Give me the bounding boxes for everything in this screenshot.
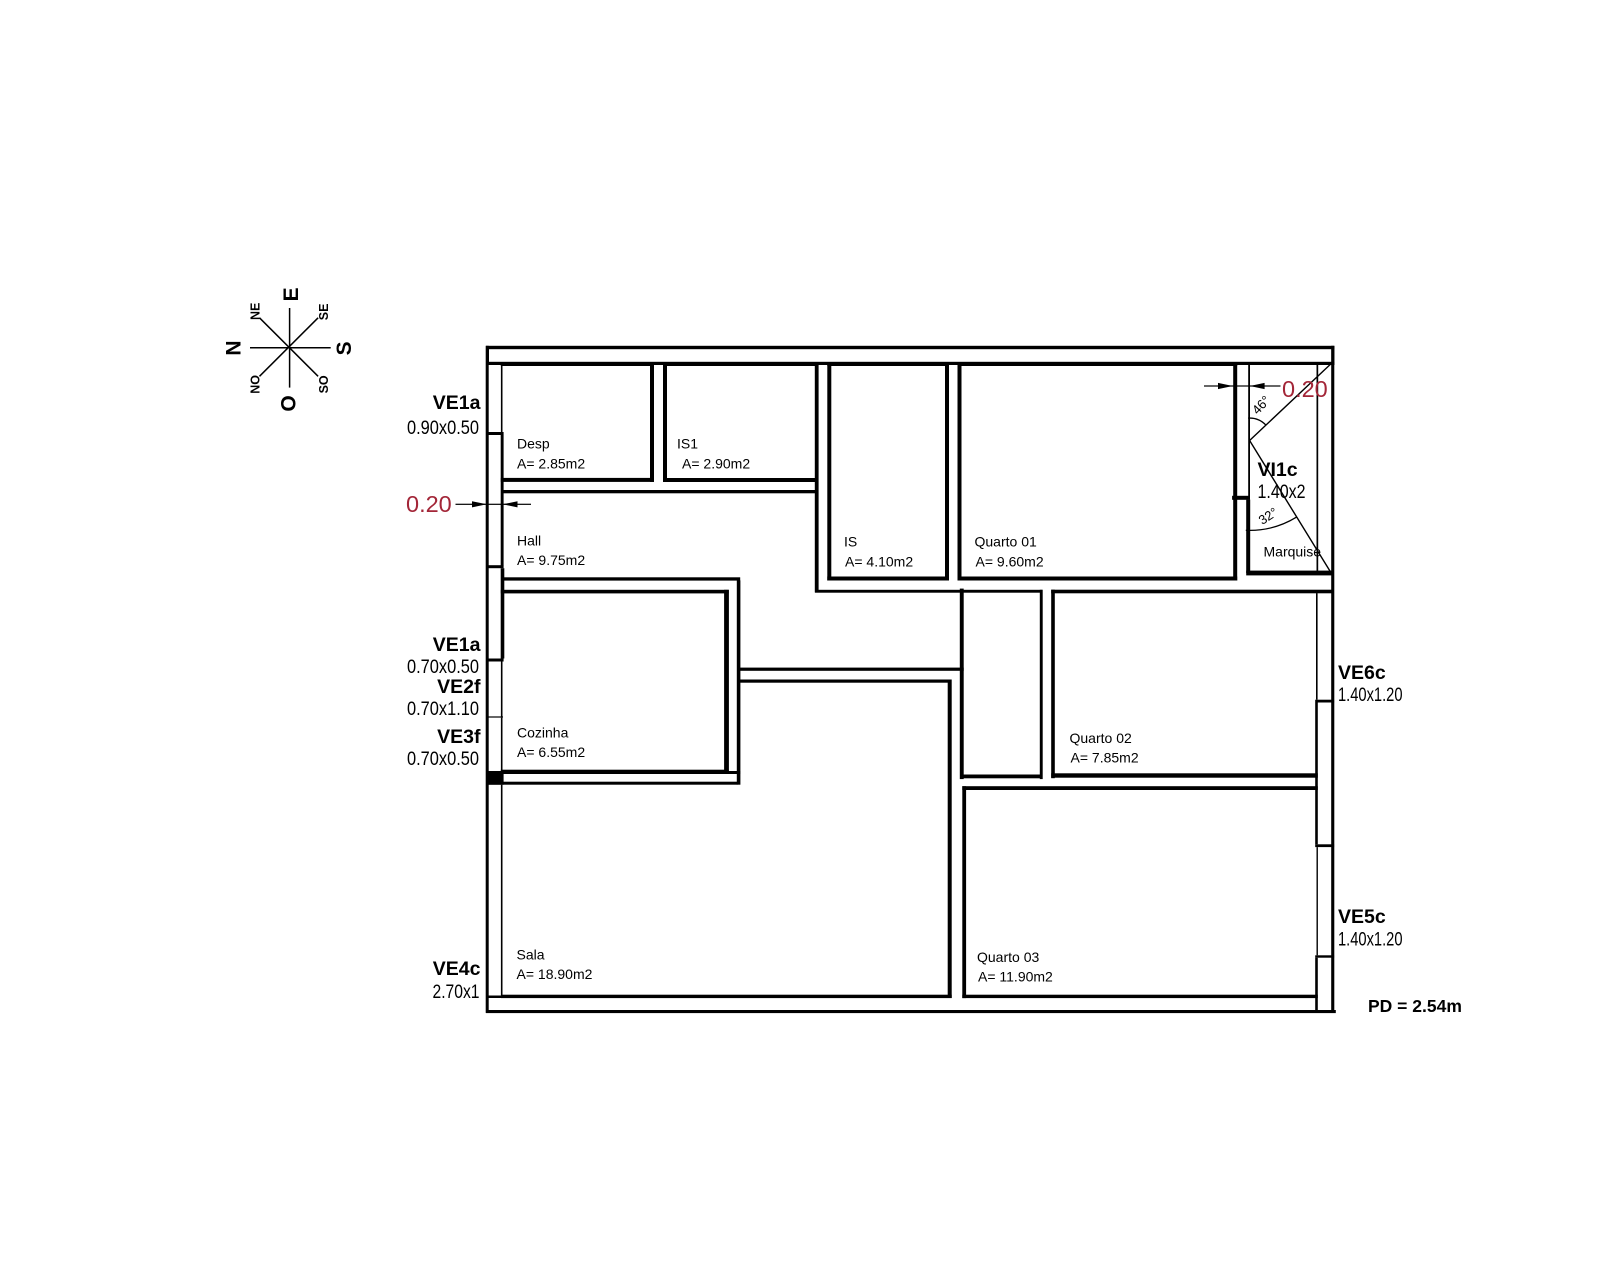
svg-text:Hall: Hall [517, 532, 541, 548]
svg-text:Quarto 03: Quarto 03 [977, 949, 1039, 965]
svg-text:0.20: 0.20 [406, 491, 452, 517]
svg-text:Desp: Desp [517, 436, 550, 452]
svg-text:S: S [333, 341, 356, 355]
svg-text:IS1: IS1 [677, 436, 698, 452]
svg-text:VE6c: VE6c [1338, 662, 1386, 684]
svg-text:VE4c: VE4c [433, 958, 481, 980]
svg-text:A= 9.60m2: A= 9.60m2 [976, 553, 1044, 569]
svg-text:A= 7.85m2: A= 7.85m2 [1071, 750, 1139, 766]
svg-text:E: E [280, 287, 303, 301]
svg-text:0.70x0.50: 0.70x0.50 [407, 656, 479, 678]
svg-text:A= 6.55m2: A= 6.55m2 [517, 744, 585, 760]
svg-text:PD = 2.54m: PD = 2.54m [1368, 996, 1462, 1016]
svg-text:N: N [223, 341, 246, 356]
svg-text:VI1c: VI1c [1258, 459, 1298, 481]
svg-text:A= 2.85m2: A= 2.85m2 [517, 455, 585, 471]
svg-text:IS: IS [844, 534, 857, 550]
svg-text:1.40x2: 1.40x2 [1258, 481, 1306, 503]
svg-text:SO: SO [317, 375, 331, 393]
svg-text:1.40x1.20: 1.40x1.20 [1338, 929, 1403, 951]
svg-text:1.40x1.20: 1.40x1.20 [1338, 684, 1403, 706]
svg-text:A= 2.90m2: A= 2.90m2 [682, 455, 750, 471]
svg-text:Cozinha: Cozinha [517, 725, 569, 741]
svg-text:SE: SE [317, 304, 331, 321]
svg-text:VE3f: VE3f [437, 726, 481, 748]
svg-text:NO: NO [248, 375, 262, 394]
svg-text:Quarto 01: Quarto 01 [975, 534, 1037, 550]
svg-text:NE: NE [248, 303, 262, 320]
svg-text:2.70x1: 2.70x1 [433, 981, 480, 1003]
svg-text:A= 4.10m2: A= 4.10m2 [845, 553, 913, 569]
svg-text:VE5c: VE5c [1338, 906, 1386, 928]
svg-text:VE2f: VE2f [437, 676, 481, 698]
svg-text:0.20: 0.20 [1282, 376, 1328, 402]
svg-text:A= 11.90m2: A= 11.90m2 [978, 969, 1053, 985]
svg-text:0.70x0.50: 0.70x0.50 [407, 748, 479, 770]
svg-text:Quarto 02: Quarto 02 [1070, 730, 1132, 746]
svg-text:A= 9.75m2: A= 9.75m2 [517, 552, 585, 568]
svg-text:A= 18.90m2: A= 18.90m2 [517, 966, 593, 982]
svg-text:VE1a: VE1a [433, 392, 481, 414]
svg-text:0.90x0.50: 0.90x0.50 [407, 417, 479, 439]
svg-text:O: O [277, 395, 300, 411]
svg-text:Marquise: Marquise [1264, 544, 1322, 560]
svg-text:VE1a: VE1a [433, 634, 481, 656]
svg-text:0.70x1.10: 0.70x1.10 [407, 698, 479, 720]
svg-text:Sala: Sala [517, 947, 545, 963]
